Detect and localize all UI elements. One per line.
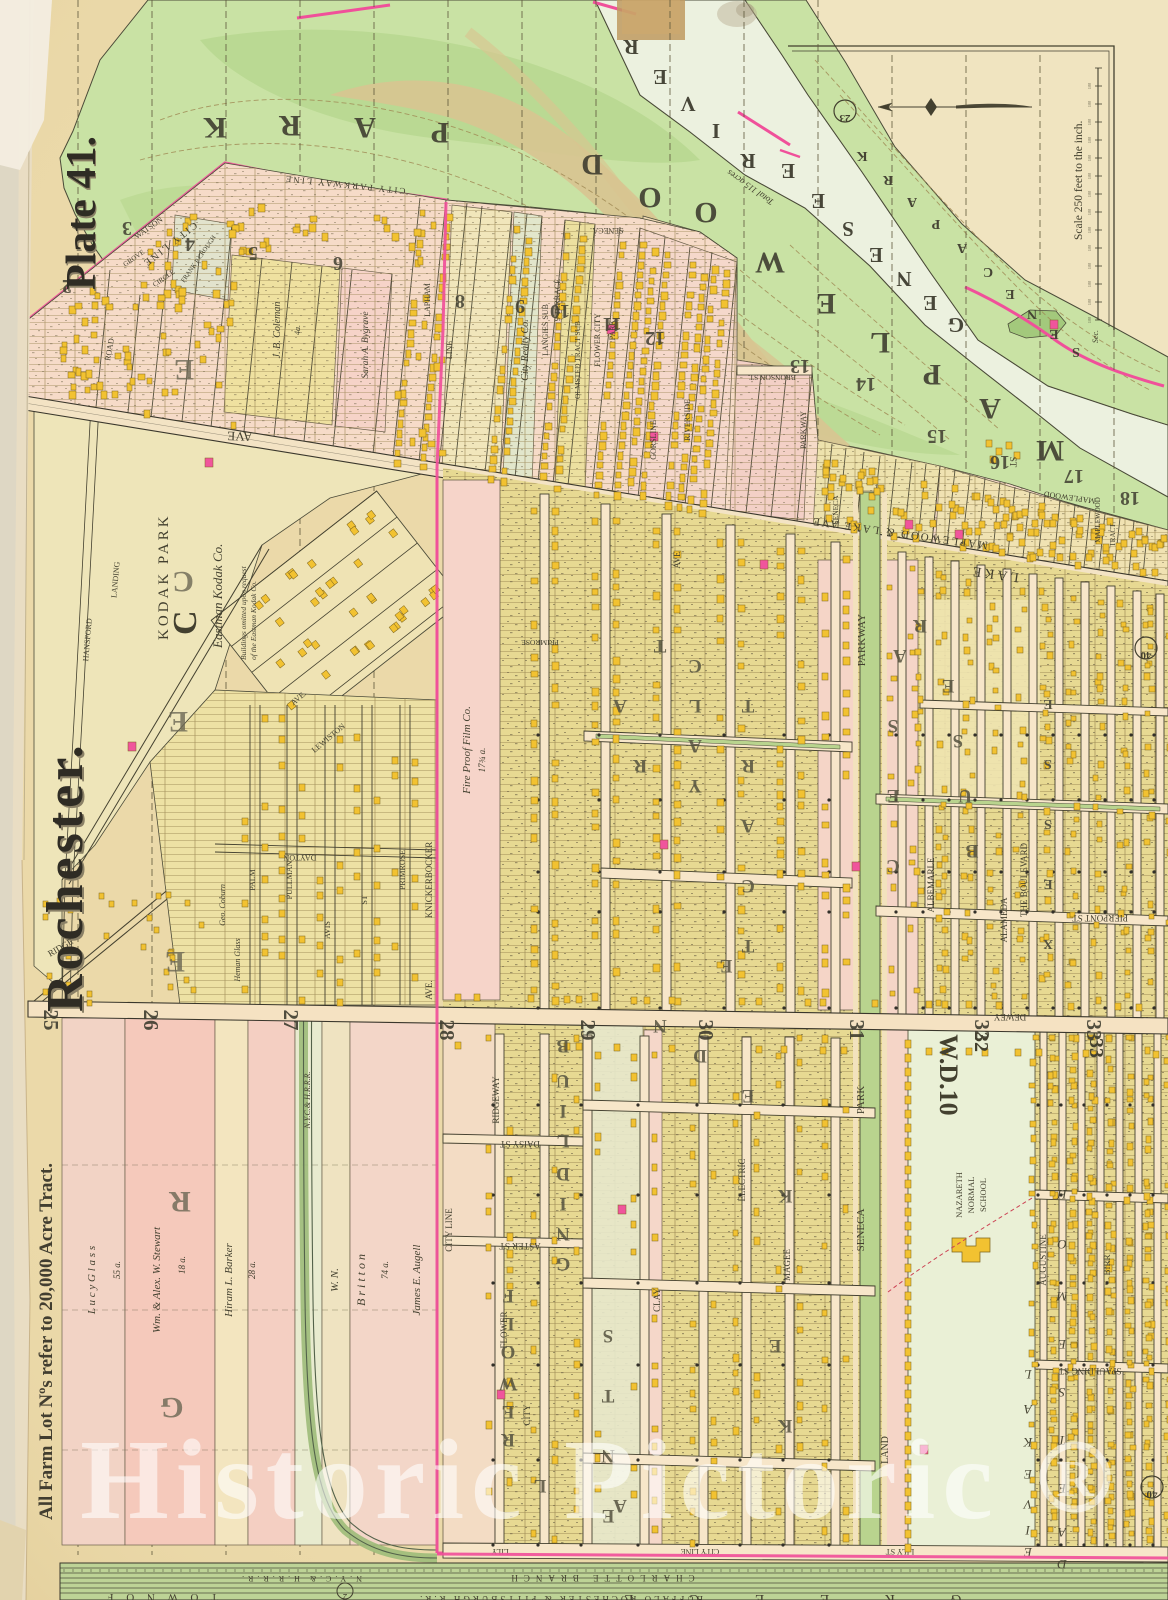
svg-text:100: 100 <box>1087 317 1092 323</box>
svg-text:A: A <box>979 392 1001 425</box>
svg-text:Hiram L. Barker: Hiram L. Barker <box>223 1242 235 1317</box>
svg-text:31: 31 <box>845 1020 869 1041</box>
svg-text:E: E <box>869 243 883 267</box>
svg-text:ASTER ST: ASTER ST <box>499 1241 541 1251</box>
svg-text:B: B <box>556 1035 569 1056</box>
svg-text:BRONSON ST.: BRONSON ST. <box>748 373 796 382</box>
svg-text:C: C <box>886 855 900 876</box>
svg-text:C: C <box>741 875 755 896</box>
svg-text:Buildings omitted upon request: Buildings omitted upon request <box>239 565 248 660</box>
svg-text:SENECA: SENECA <box>855 1209 867 1252</box>
svg-text:26: 26 <box>139 1010 163 1031</box>
svg-text:A: A <box>1058 1525 1067 1540</box>
svg-text:Eastman Kodak Co.: Eastman Kodak Co. <box>210 544 225 649</box>
svg-text:100: 100 <box>1087 209 1092 215</box>
svg-text:M: M <box>1055 1289 1068 1304</box>
svg-text:2: 2 <box>343 1592 348 1600</box>
svg-text:PRIMROSE: PRIMROSE <box>521 638 559 647</box>
svg-text:AVE: AVE <box>672 551 682 569</box>
svg-text:ST: ST <box>1008 457 1018 468</box>
svg-text:L: L <box>557 1130 570 1151</box>
svg-text:OLMSTED TRACT SUB: OLMSTED TRACT SUB <box>573 321 582 399</box>
svg-text:ALAMEDA: ALAMEDA <box>999 897 1009 942</box>
svg-text:N.Y.C.& H.R.R.R.: N.Y.C.& H.R.R.R. <box>238 1574 362 1583</box>
svg-text:ALBEMARLE: ALBEMARLE <box>926 857 936 913</box>
svg-text:X: X <box>1043 936 1053 951</box>
svg-text:of the Eastman Kodak Co.: of the Eastman Kodak Co. <box>249 581 258 660</box>
svg-text:O: O <box>694 196 717 229</box>
svg-text:100: 100 <box>1087 227 1092 233</box>
svg-text:DAYTON: DAYTON <box>283 853 316 862</box>
svg-text:LINE: LINE <box>445 341 454 359</box>
svg-text:T: T <box>741 695 754 716</box>
svg-text:SENECA: SENECA <box>592 226 623 235</box>
svg-text:E: E <box>1024 1467 1033 1482</box>
svg-text:A: A <box>956 240 967 255</box>
svg-text:K: K <box>777 1185 792 1206</box>
svg-text:100: 100 <box>1087 119 1092 125</box>
svg-text:AVE: AVE <box>227 429 253 445</box>
svg-text:100: 100 <box>1087 83 1092 89</box>
svg-text:28 a.: 28 a. <box>247 1261 257 1279</box>
svg-text:4a.: 4a. <box>293 325 302 335</box>
svg-text:55 a.: 55 a. <box>112 1261 122 1279</box>
svg-text:40: 40 <box>1140 649 1152 661</box>
svg-text:30: 30 <box>694 1020 718 1041</box>
svg-text:L: L <box>870 326 890 359</box>
svg-text:PALM: PALM <box>248 869 257 891</box>
svg-text:E: E <box>887 785 900 806</box>
svg-text:TRACT: TRACT <box>1109 523 1117 547</box>
svg-text:F: F <box>502 1285 514 1306</box>
svg-text:N: N <box>896 267 911 291</box>
svg-text:C: C <box>983 264 993 279</box>
svg-text:G R E E C E: G R E E C E <box>598 1591 961 1600</box>
svg-text:C: C <box>688 655 702 676</box>
svg-text:S: S <box>888 715 899 736</box>
svg-text:E: E <box>742 1085 755 1106</box>
svg-text:27: 27 <box>279 1010 303 1031</box>
svg-text:FLOWER CITY: FLOWER CITY <box>593 313 602 367</box>
svg-text:KNICKERBOCKER: KNICKERBOCKER <box>424 842 434 919</box>
svg-text:R: R <box>1056 1451 1095 1508</box>
svg-text:J. B. Coleman: J. B. Coleman <box>272 302 283 359</box>
svg-text:L u c y G l a s s: L u c y G l a s s <box>86 1246 98 1315</box>
svg-text:PIERPONT ST: PIERPONT ST <box>1072 913 1128 923</box>
svg-text:32: 32 <box>970 1032 992 1052</box>
svg-text:100: 100 <box>1087 155 1092 161</box>
svg-text:P: P <box>431 116 449 149</box>
svg-text:E: E <box>811 189 825 213</box>
svg-text:N: N <box>556 1223 570 1244</box>
svg-text:T: T <box>653 635 666 656</box>
svg-text:DEWEY: DEWEY <box>993 1012 1026 1022</box>
svg-text:E: E <box>942 675 955 696</box>
svg-text:T: T <box>741 935 754 956</box>
svg-text:L: L <box>689 695 702 716</box>
svg-text:U: U <box>958 785 972 806</box>
svg-text:D: D <box>693 1045 707 1066</box>
svg-text:PRIMROSE: PRIMROSE <box>398 850 407 890</box>
svg-text:O: O <box>638 181 661 214</box>
svg-text:K: K <box>203 111 227 144</box>
svg-text:D: D <box>581 148 603 181</box>
svg-text:N.Y.C.& H.R.R.R.: N.Y.C.& H.R.R.R. <box>303 1071 312 1129</box>
svg-text:R: R <box>740 149 756 173</box>
svg-text:W: W <box>755 246 785 279</box>
svg-text:V: V <box>680 92 695 116</box>
svg-text:SCHOOL: SCHOOL <box>978 1178 988 1212</box>
svg-text:L: L <box>502 1313 515 1334</box>
svg-text:18: 18 <box>1120 487 1140 509</box>
svg-text:3: 3 <box>122 217 132 239</box>
svg-text:O: O <box>501 1341 516 1362</box>
svg-text:T: T <box>601 1385 614 1406</box>
svg-text:Fire Proof Film Co.: Fire Proof Film Co. <box>461 706 473 795</box>
svg-text:All Farm Lot Nºs refer to 20,0: All Farm Lot Nºs refer to 20,000 Acre Tr… <box>36 1163 57 1520</box>
svg-text:Heman Glass: Heman Glass <box>233 938 242 982</box>
svg-text:Historic Pictoric: Historic Pictoric <box>80 1416 1000 1543</box>
svg-text:RIDGEWAY: RIDGEWAY <box>491 1076 501 1124</box>
svg-text:NORMAL: NORMAL <box>966 1177 976 1214</box>
svg-text:B r i t t o n: B r i t t o n <box>354 1254 368 1306</box>
svg-text:THE BOULEVARD: THE BOULEVARD <box>1019 842 1029 917</box>
svg-text:RIVERSIDE: RIVERSIDE <box>683 399 692 441</box>
svg-text:ST: ST <box>360 895 369 904</box>
svg-text:D: D <box>556 1163 570 1184</box>
svg-text:R: R <box>882 172 893 187</box>
svg-text:E: E <box>720 955 733 976</box>
svg-text:LANGIES SUB: LANGIES SUB <box>541 304 550 356</box>
svg-text:James E. Augell: James E. Augell <box>411 1245 423 1316</box>
svg-text:100: 100 <box>1087 191 1092 197</box>
svg-text:E: E <box>165 945 185 978</box>
svg-text:E: E <box>769 1335 782 1356</box>
svg-text:A: A <box>354 111 376 144</box>
svg-text:I: I <box>559 1100 566 1121</box>
svg-text:H: H <box>1057 1187 1068 1202</box>
svg-text:AUGUSTINE: AUGUSTINE <box>1038 1234 1048 1286</box>
svg-text:74 a.: 74 a. <box>380 1261 390 1279</box>
svg-text:BIRR: BIRR <box>1102 1254 1112 1275</box>
svg-text:P: P <box>931 216 940 231</box>
svg-text:K: K <box>856 148 867 163</box>
svg-text:W: W <box>499 1373 518 1394</box>
svg-text:I: I <box>712 119 720 143</box>
svg-text:E: E <box>1058 1337 1067 1352</box>
svg-text:Scale 250 feet to the inch.: Scale 250 feet to the inch. <box>1073 120 1085 240</box>
svg-text:33: 33 <box>1085 1038 1107 1058</box>
svg-text:MAPLEWOOD: MAPLEWOOD <box>1094 497 1102 543</box>
svg-text:R: R <box>633 755 647 776</box>
svg-text:Sarah A. Bygrave: Sarah A. Bygrave <box>361 311 371 378</box>
svg-text:R: R <box>279 109 301 142</box>
svg-text:18 a.: 18 a. <box>177 1256 187 1274</box>
svg-text:GORSLINE: GORSLINE <box>649 420 658 460</box>
svg-text:100: 100 <box>1087 263 1092 269</box>
svg-text:PARKWAY: PARKWAY <box>799 411 808 449</box>
svg-text:S: S <box>1044 816 1052 831</box>
svg-text:R: R <box>623 35 639 59</box>
svg-text:I: I <box>1025 1523 1031 1538</box>
svg-text:9 TERRACE: 9 TERRACE <box>553 279 562 321</box>
svg-text:AVE.: AVE. <box>424 980 434 1000</box>
svg-text:17: 17 <box>1064 465 1084 487</box>
svg-text:Rochester.: Rochester. <box>37 741 94 1012</box>
svg-text:ELECTRIC: ELECTRIC <box>737 1159 747 1202</box>
svg-text:E: E <box>174 353 194 386</box>
svg-text:O: O <box>1057 1237 1067 1252</box>
svg-text:B: B <box>965 840 978 861</box>
svg-text:S: S <box>1058 1385 1065 1400</box>
svg-text:S: S <box>842 217 854 241</box>
svg-text:C: C <box>167 610 204 635</box>
svg-text:R: R <box>741 755 755 776</box>
svg-text:E: E <box>1043 696 1052 711</box>
svg-text:100: 100 <box>1087 101 1092 107</box>
svg-text:A: A <box>893 645 907 666</box>
svg-text:PARKWAY: PARKWAY <box>856 614 868 666</box>
svg-text:100: 100 <box>1087 137 1092 143</box>
svg-text:LAPHAM: LAPHAM <box>423 283 432 317</box>
svg-text:Geo. Coburn: Geo. Coburn <box>218 884 227 926</box>
svg-text:23: 23 <box>839 112 851 124</box>
svg-text:M: M <box>1036 434 1064 467</box>
svg-text:S: S <box>1072 344 1080 359</box>
svg-text:CLAY: CLAY <box>652 1288 662 1312</box>
svg-text:17¾ a.: 17¾ a. <box>477 748 487 773</box>
svg-text:E: E <box>816 287 836 320</box>
svg-text:Sec.: Sec. <box>1091 330 1100 343</box>
svg-text:R: R <box>169 1185 191 1218</box>
svg-text:W.D.10: W.D.10 <box>934 1034 963 1115</box>
svg-text:NAZARETH: NAZARETH <box>954 1172 964 1218</box>
svg-text:A: A <box>741 815 755 836</box>
svg-text:T O W N O F: T O W N O F <box>102 1591 217 1600</box>
svg-text:4: 4 <box>185 233 195 255</box>
svg-text:SPAULDING ST: SPAULDING ST <box>1058 1366 1121 1376</box>
svg-text:S: S <box>1044 756 1052 771</box>
svg-text:P: P <box>923 358 941 391</box>
svg-text:G: G <box>555 1253 570 1274</box>
svg-text:A: A <box>613 695 627 716</box>
svg-text:S: S <box>953 730 964 751</box>
svg-text:I: I <box>559 1193 566 1214</box>
svg-text:Y: Y <box>688 775 702 796</box>
svg-text:E: E <box>653 65 667 89</box>
svg-text:A: A <box>906 194 917 209</box>
svg-text:5: 5 <box>248 242 258 264</box>
svg-text:6: 6 <box>333 252 343 274</box>
svg-text:R: R <box>913 615 927 636</box>
svg-text:PULLMAN: PULLMAN <box>285 860 294 899</box>
svg-text:CHARLOTTE BRANCH: CHARLOTTE BRANCH <box>505 1573 694 1583</box>
svg-text:Wm. & Alex. W. Stewart: Wm. & Alex. W. Stewart <box>151 1226 163 1333</box>
svg-text:14: 14 <box>856 373 876 395</box>
svg-text:9: 9 <box>515 295 525 317</box>
svg-text:CITY LINE: CITY LINE <box>444 1208 454 1252</box>
svg-text:E: E <box>1043 876 1052 891</box>
svg-text:MAGEE: MAGEE <box>782 1249 792 1281</box>
svg-text:E: E <box>1049 326 1058 341</box>
svg-text:PARK: PARK <box>855 1086 867 1114</box>
svg-text:N: N <box>1027 306 1037 321</box>
svg-text:AVIS: AVIS <box>323 921 332 939</box>
svg-text:W. N.: W. N. <box>329 1268 341 1292</box>
svg-text:N: N <box>653 1015 667 1036</box>
svg-text:100: 100 <box>1087 245 1092 251</box>
svg-text:U: U <box>556 1070 570 1091</box>
svg-text:E: E <box>1005 286 1014 301</box>
svg-text:S: S <box>603 1325 614 1346</box>
svg-text:16: 16 <box>990 451 1010 473</box>
svg-text:100: 100 <box>1087 173 1092 179</box>
svg-text:29: 29 <box>576 1020 600 1041</box>
svg-text:Plate 41.: Plate 41. <box>59 136 105 290</box>
svg-text:PARK: PARK <box>608 319 617 340</box>
svg-text:C: C <box>172 565 194 598</box>
svg-text:E: E <box>781 159 795 183</box>
svg-text:A: A <box>688 735 702 756</box>
svg-text:100: 100 <box>1087 281 1092 287</box>
svg-text:40: 40 <box>1146 1488 1158 1500</box>
svg-text:D: D <box>1057 1557 1068 1572</box>
svg-text:G: G <box>948 313 964 337</box>
svg-text:K: K <box>1022 1435 1033 1450</box>
svg-text:L: L <box>1024 1367 1032 1382</box>
svg-text:12: 12 <box>645 327 665 349</box>
svg-text:City Realty Co.: City Realty Co. <box>520 319 531 380</box>
svg-text:E: E <box>168 705 188 738</box>
svg-text:A: A <box>1024 1402 1033 1417</box>
svg-text:15: 15 <box>927 425 947 447</box>
svg-text:E: E <box>923 291 937 315</box>
svg-text:28: 28 <box>435 1020 459 1041</box>
svg-text:100: 100 <box>1087 299 1092 305</box>
svg-text:DAISY ST: DAISY ST <box>500 1139 540 1149</box>
svg-text:8: 8 <box>455 290 465 312</box>
